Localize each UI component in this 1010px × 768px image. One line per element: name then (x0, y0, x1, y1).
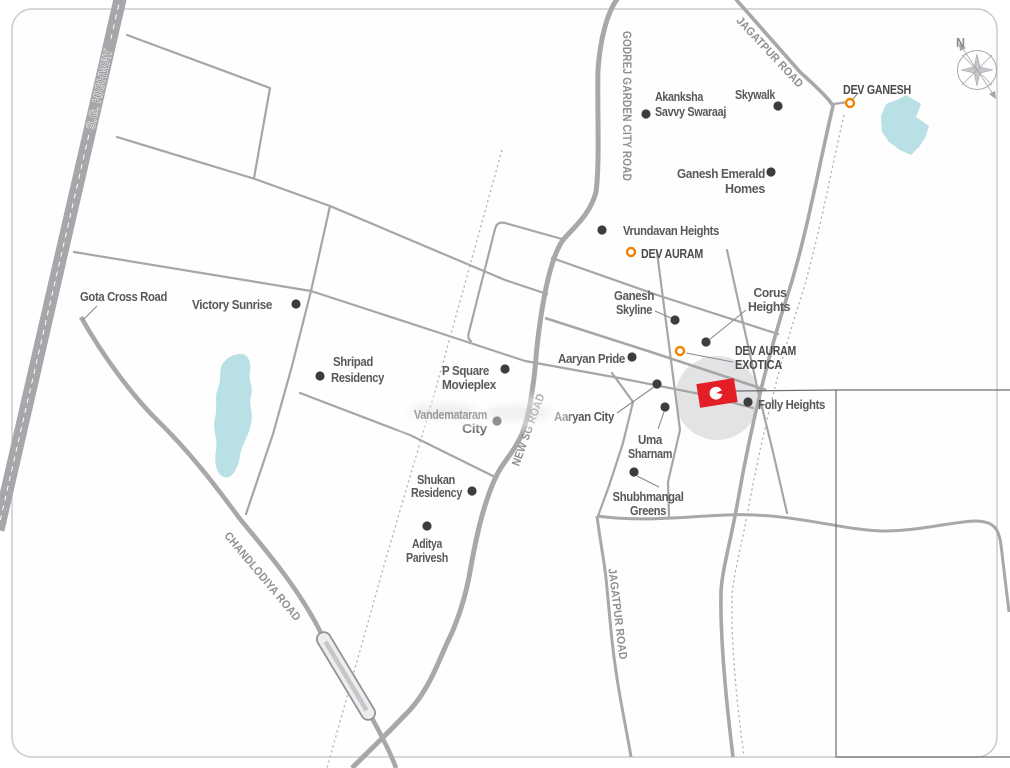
svg-text:P Square: P Square (442, 363, 489, 378)
svg-text:Ganesh: Ganesh (614, 288, 654, 303)
svg-text:Sharnam: Sharnam (628, 446, 672, 461)
svg-text:Aaryan Pride: Aaryan Pride (558, 351, 625, 366)
svg-text:Vrundavan Heights: Vrundavan Heights (623, 223, 719, 238)
svg-text:EXOTICA: EXOTICA (735, 358, 782, 372)
svg-text:DEV AURAM: DEV AURAM (641, 247, 703, 261)
svg-text:Heights: Heights (748, 299, 790, 314)
svg-text:Residency: Residency (411, 485, 463, 500)
svg-text:Folly Heights: Folly Heights (758, 397, 825, 412)
svg-text:DEV AURAM: DEV AURAM (735, 344, 796, 358)
svg-text:GODREJ GARDEN CITY ROAD: GODREJ GARDEN CITY ROAD (620, 31, 632, 181)
svg-text:Skyline: Skyline (616, 302, 652, 317)
svg-text:Homes: Homes (725, 181, 765, 196)
svg-text:Movieplex: Movieplex (442, 377, 497, 392)
svg-text:DEV GANESH: DEV GANESH (843, 83, 911, 97)
svg-text:Greens: Greens (630, 503, 666, 518)
svg-text:Aditya: Aditya (412, 536, 443, 551)
svg-text:Corus: Corus (754, 285, 787, 300)
svg-text:Parivesh: Parivesh (406, 550, 448, 565)
svg-text:Uma: Uma (638, 432, 663, 447)
svg-text:Skywalk: Skywalk (735, 87, 776, 102)
svg-text:Savvy Swaraaj: Savvy Swaraaj (655, 104, 726, 119)
svg-text:Ganesh Emerald: Ganesh Emerald (677, 166, 765, 181)
svg-text:N: N (956, 36, 965, 50)
svg-text:Residency: Residency (331, 370, 385, 385)
svg-text:Gota Cross Road: Gota Cross Road (80, 289, 167, 304)
svg-text:Shripad: Shripad (333, 354, 373, 369)
svg-text:Victory Sunrise: Victory Sunrise (192, 297, 272, 312)
svg-text:Shubhmangal: Shubhmangal (613, 489, 684, 504)
svg-text:Akanksha: Akanksha (655, 89, 704, 104)
